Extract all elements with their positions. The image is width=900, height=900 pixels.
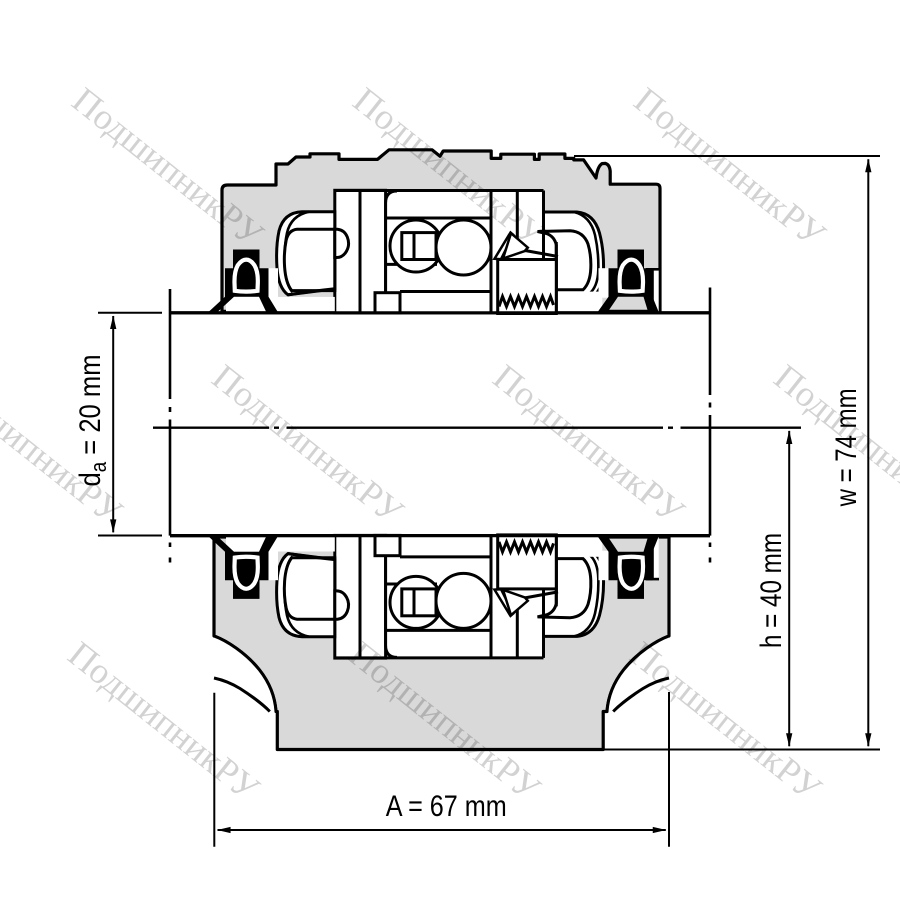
svg-text:A = 67 mm: A = 67 mm [386,790,507,823]
svg-text:h = 40 mm: h = 40 mm [755,533,788,648]
